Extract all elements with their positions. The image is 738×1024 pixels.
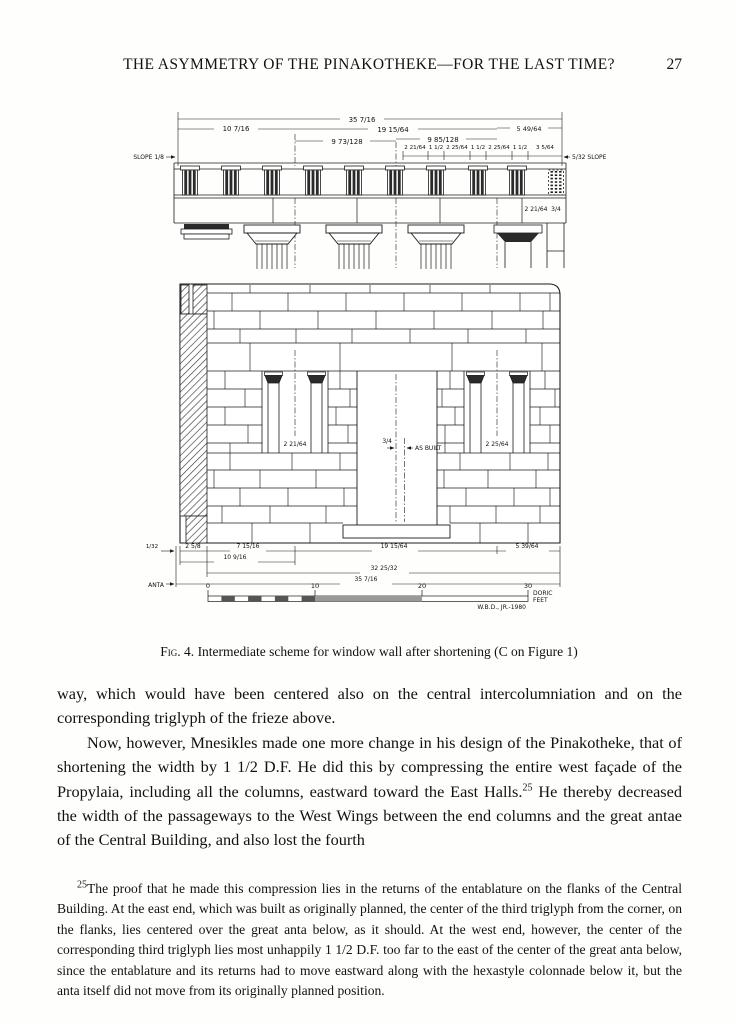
scale-bar: 0 10 20 30 DORIC FEET W.B.D., JR.-1980 bbox=[206, 582, 553, 611]
dim-a: 7 15/16 bbox=[236, 543, 259, 550]
dim-span-left: 10 7/16 bbox=[223, 125, 250, 133]
window-right-dim: 2 25/64 bbox=[485, 441, 508, 448]
dim-overall-bottom: 35 7/16 bbox=[354, 576, 377, 583]
footnote-25: 25The proof that he made this compressio… bbox=[57, 879, 682, 1002]
right-capital bbox=[494, 225, 542, 268]
paragraph-2: Now, however, Mnesikles made one more ch… bbox=[57, 731, 682, 853]
dim-small-4: 2 25/64 bbox=[488, 145, 510, 151]
scale-tick-10: 10 bbox=[311, 582, 319, 590]
scale-tick-20: 20 bbox=[418, 582, 426, 590]
architrave-labels: 2 21/64 3/4 bbox=[524, 206, 561, 213]
dim-small-5: 1 1/2 bbox=[513, 145, 527, 151]
capitals-row bbox=[181, 223, 564, 269]
footnote-reference: 25 bbox=[522, 782, 532, 793]
slope-left-label: SLOPE 1/8 bbox=[133, 154, 164, 161]
doric-capital bbox=[408, 225, 464, 269]
footnote-text: The proof that he made this compression … bbox=[57, 881, 682, 999]
journal-page: THE ASYMMETRY OF THE PINAKOTHEKE—FOR THE… bbox=[0, 0, 738, 1024]
doric-capital bbox=[326, 225, 382, 269]
scale-tick-30: 30 bbox=[524, 582, 532, 590]
slope-right-label: 5/32 SLOPE bbox=[572, 154, 607, 161]
paragraph-1: way, which would have been centered also… bbox=[57, 682, 682, 731]
scale-credit: W.B.D., JR.-1980 bbox=[477, 604, 526, 611]
frieze-triglyphs bbox=[181, 166, 564, 195]
figure-4: 35 7/16 10 7/16 19 15/64 5 49/64 9 73/12… bbox=[0, 98, 738, 618]
wall-elevation bbox=[180, 284, 560, 543]
top-dimension-labels: 35 7/16 10 7/16 19 15/64 5 49/64 9 73/12… bbox=[133, 116, 606, 161]
corner-pier bbox=[547, 223, 564, 268]
figure-caption: Fig. 4. Intermediate scheme for window w… bbox=[0, 644, 738, 660]
page-number: 27 bbox=[667, 56, 683, 74]
architrave-dim-b: 3/4 bbox=[551, 206, 561, 213]
doric-capital bbox=[244, 225, 300, 269]
dim-b: 19 15/64 bbox=[381, 543, 408, 550]
as-built-label: AS BUILT bbox=[415, 445, 442, 452]
anta bbox=[180, 285, 207, 543]
body-text: way, which would have been centered also… bbox=[57, 682, 682, 853]
dim-small-6: 3 5/64 bbox=[536, 145, 554, 151]
dim-small-2: 2 25/64 bbox=[446, 145, 468, 151]
footnote-marker: 25 bbox=[77, 879, 87, 890]
scale-unit-line2: FEET bbox=[533, 597, 548, 604]
dim-d: 10 9/16 bbox=[223, 554, 246, 561]
scale-tick-0: 0 bbox=[206, 582, 210, 590]
scale-unit-line1: DORIC bbox=[533, 590, 552, 597]
dim-bay-left: 9 73/128 bbox=[331, 138, 362, 146]
article-title: THE ASYMMETRY OF THE PINAKOTHEKE—FOR THE… bbox=[0, 56, 738, 74]
anta-capital bbox=[184, 224, 229, 229]
window-left-dim: 2 21/64 bbox=[283, 441, 306, 448]
figure-caption-text: Intermediate scheme for window wall afte… bbox=[194, 644, 578, 659]
door-offset-dim: 3/4 bbox=[382, 438, 392, 445]
bottom-dimension-labels: 1/32 2 5/8 7 15/16 19 15/64 5 39/64 10 9… bbox=[146, 543, 539, 589]
dim-e: 32 25/32 bbox=[371, 565, 398, 572]
dim-bay-right: 9 85/128 bbox=[427, 136, 458, 144]
dim-small-0: 2 21/64 bbox=[404, 145, 426, 151]
dim-small-1: 1 1/2 bbox=[429, 145, 443, 151]
dim-small-3: 1 1/2 bbox=[471, 145, 485, 151]
dim-span-mid: 19 15/64 bbox=[377, 126, 409, 134]
figure-4-drawing: 35 7/16 10 7/16 19 15/64 5 49/64 9 73/12… bbox=[0, 98, 738, 618]
dim-anta-width: 2 5/8 bbox=[185, 543, 201, 550]
figure-caption-label: Fig. 4. bbox=[160, 644, 194, 659]
dim-overall-top: 35 7/16 bbox=[349, 116, 376, 124]
dim-edge: 1/32 bbox=[146, 544, 158, 550]
dashed-triglyph bbox=[549, 170, 564, 195]
anta-label: ANTA bbox=[148, 582, 165, 589]
dim-span-right: 5 49/64 bbox=[517, 125, 542, 133]
page-header: THE ASYMMETRY OF THE PINAKOTHEKE—FOR THE… bbox=[0, 0, 738, 78]
architrave-dim-a: 2 21/64 bbox=[524, 206, 547, 213]
dim-c: 5 39/64 bbox=[515, 543, 538, 550]
